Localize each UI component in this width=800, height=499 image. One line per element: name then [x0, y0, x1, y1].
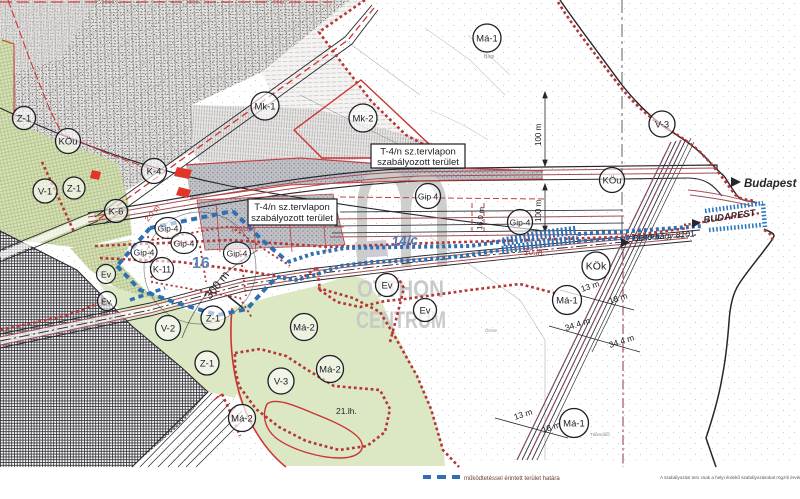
svg-text:szabályozott terület: szabályozott terület [377, 157, 459, 168]
svg-text:V-1: V-1 [38, 187, 52, 198]
svg-text:Z-1: Z-1 [17, 114, 31, 125]
svg-text:Gip 4: Gip 4 [418, 192, 439, 202]
svg-text:K-11: K-11 [153, 265, 171, 275]
svg-text:Mk-2: Mk-2 [352, 114, 373, 125]
svg-text:KÖu: KÖu [58, 137, 77, 148]
svg-text:Z-1: Z-1 [206, 314, 220, 325]
svg-text:Ev: Ev [419, 306, 430, 317]
svg-text:szabályozott terület: szabályozott terület [251, 213, 333, 224]
svg-text:100 m: 100 m [534, 123, 543, 146]
svg-text:KÖu: KÖu [602, 176, 621, 187]
svg-text:Budapest: Budapest [744, 178, 798, 190]
svg-text:Mk-1: Mk-1 [254, 102, 275, 113]
svg-text:Gip-4: Gip-4 [227, 249, 248, 259]
svg-text:Gip-4: Gip-4 [510, 218, 531, 228]
svg-text:K-4: K-4 [147, 167, 162, 178]
svg-text:10.lh.: 10.lh. [524, 247, 545, 257]
svg-text:Gip-4: Gip-4 [174, 239, 195, 249]
svg-text:16: 16 [192, 255, 210, 272]
svg-text:Bagi: Bagi [484, 54, 494, 60]
svg-text:A szabályozási terv csak a hel: A szabályozási terv csak a helyi érdekű … [660, 475, 800, 480]
svg-text:V-2: V-2 [161, 324, 175, 335]
svg-text:Má-1: Má-1 [556, 296, 578, 307]
svg-text:Ev: Ev [381, 281, 392, 292]
svg-text:Má-2: Má-2 [231, 414, 253, 425]
svg-text:Z-1: Z-1 [200, 359, 214, 370]
svg-text:Tátesdűlő: Tátesdűlő [590, 432, 610, 437]
svg-text:14/c: 14/c [391, 232, 419, 249]
svg-text:Ev: Ev [101, 270, 112, 280]
svg-text:100 m: 100 m [534, 199, 543, 222]
svg-text:Örzse: Örzse [485, 327, 497, 333]
svg-text:K-6: K-6 [109, 207, 124, 218]
svg-text:Gip-4: Gip-4 [134, 248, 155, 258]
svg-text:T-4/n sz.tervlapon: T-4/n sz.tervlapon [254, 202, 330, 213]
svg-text:Má-1: Má-1 [476, 34, 498, 45]
svg-text:V-3: V-3 [274, 377, 288, 388]
svg-text:KÖk: KÖk [586, 261, 607, 273]
svg-text:T-4/n sz.tervlapon: T-4/n sz.tervlapon [380, 147, 456, 158]
svg-text:Ev.: Ev. [101, 297, 113, 307]
svg-text:Gip-4: Gip-4 [158, 224, 179, 234]
svg-text:V-3: V-3 [655, 120, 669, 131]
svg-text:Má-2: Má-2 [293, 323, 315, 334]
svg-text:Z-1: Z-1 [67, 184, 81, 195]
svg-text:Má-2: Má-2 [319, 365, 341, 376]
svg-text:(zöld): (zöld) [232, 224, 251, 233]
svg-text:21.lh.: 21.lh. [336, 406, 357, 416]
svg-text:működtetéssel érintett terület: működtetéssel érintett terület határa [464, 476, 560, 482]
svg-text:Má-1: Má-1 [563, 419, 585, 430]
